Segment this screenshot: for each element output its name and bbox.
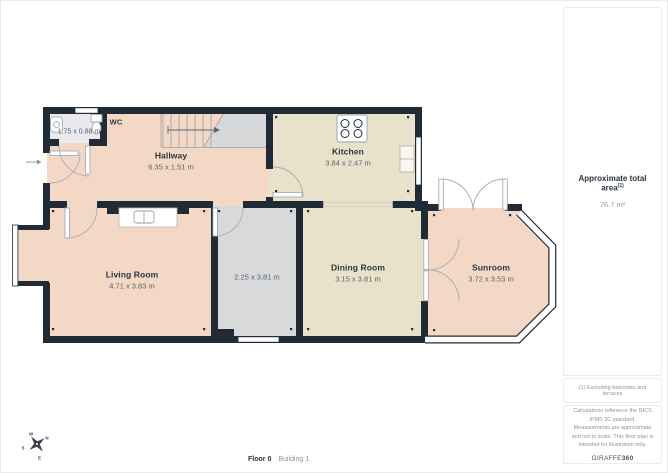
floorplan-canvas: W N S E [1, 1, 561, 473]
total-area-panel: Approximate total area(1) 76.7 m² [563, 7, 662, 376]
room-label-sunroom: Sunroom 3.72 x 3.53 m [468, 263, 513, 284]
garden-door-leaf-left [439, 179, 444, 210]
room-label-living-room: Living Room 4.71 x 3.83 m [106, 270, 159, 291]
kitchen-window [416, 137, 421, 185]
sunroom-french-door-leaf-bottom [424, 271, 429, 301]
wc-window [75, 108, 98, 113]
floorplan-page: W N S E WC 1.75 x 0.88 m Hallway 6.35 x … [0, 0, 668, 473]
living-room-door-leaf [65, 208, 70, 238]
total-area-title-text: Approximate total area [578, 174, 646, 193]
total-area-value: 76.7 m² [600, 200, 625, 209]
kitchen-counter-icon [400, 146, 414, 172]
compass-west-label: W [29, 432, 34, 437]
giraffe360-logo: GIRAFFE360 [591, 455, 633, 462]
fireplace-icon [119, 208, 177, 227]
compass-north-label: N [45, 436, 48, 441]
compass-east-label: E [38, 456, 41, 461]
room-name-wc: WC [110, 118, 123, 127]
brand-suffix: 360 [622, 455, 634, 462]
compass-south-label: S [21, 446, 24, 451]
disclaimer-panel: Calculations reference the RICS IPMS 3C … [563, 405, 662, 464]
floor-selector: Floor 0 Building 1 [248, 456, 309, 463]
footnote-text: (1) Excluding balconies and terraces [564, 385, 661, 397]
total-area-footnote-marker: (1) [618, 183, 624, 189]
room-label-hallway: Hallway 6.35 x 1.51 m [148, 151, 193, 172]
middle-room-door-leaf [213, 208, 218, 236]
stove-icon [337, 115, 367, 142]
entrance-arrow-icon [26, 160, 42, 165]
floor-label: Floor 0 [248, 456, 271, 463]
bay-window-floor [15, 227, 49, 284]
bay-window [13, 225, 18, 286]
kitchen-door-leaf [273, 193, 302, 198]
room-dims-wc: 1.75 x 0.88 m [58, 129, 100, 136]
room-label-dining-room: Dining Room 3.15 x 3.81 m [331, 263, 385, 284]
room-label-middle-room: 2.25 x 3.81 m [234, 271, 279, 282]
building-label: Building 1 [278, 456, 309, 463]
total-area-title: Approximate total area(1) [564, 174, 661, 193]
middle-room-window [238, 337, 279, 342]
sunroom-french-door-leaf-top [424, 240, 429, 270]
brand-name: GIRAFFE [591, 455, 621, 462]
compass-rose-icon: W N S E [21, 431, 50, 461]
front-door-leaf [50, 151, 78, 156]
disclaimer-text: Calculations reference the RICS IPMS 3C … [564, 407, 661, 450]
garden-door-swing-left [441, 179, 473, 211]
footnote-panel: (1) Excluding balconies and terraces [563, 378, 662, 403]
room-label-kitchen: Kitchen 3.84 x 2.47 m [325, 147, 370, 168]
wc-door-leaf [86, 146, 91, 174]
garden-door-swing-right [473, 179, 505, 211]
garden-door-leaf-right [503, 179, 508, 210]
